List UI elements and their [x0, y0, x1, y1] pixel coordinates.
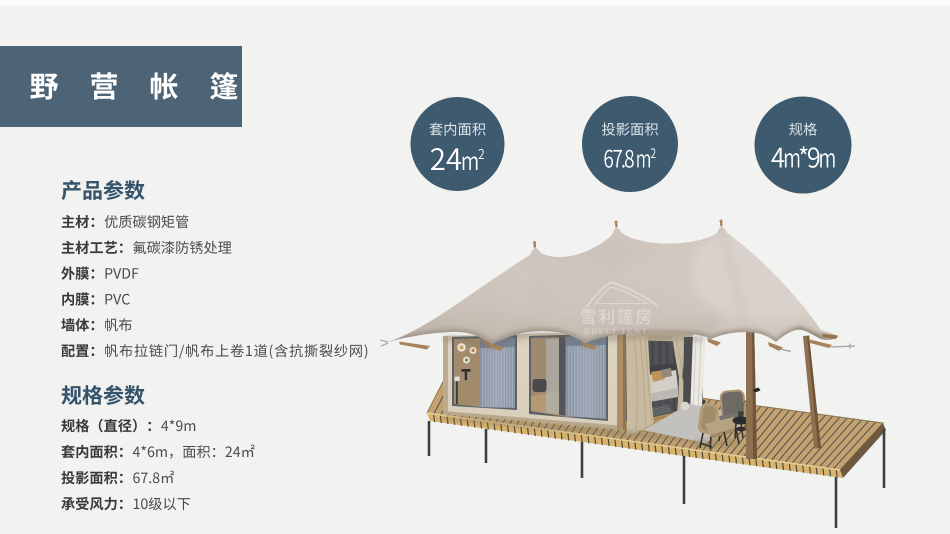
svg-text:XUELI TENT: XUELI TENT	[583, 326, 648, 336]
